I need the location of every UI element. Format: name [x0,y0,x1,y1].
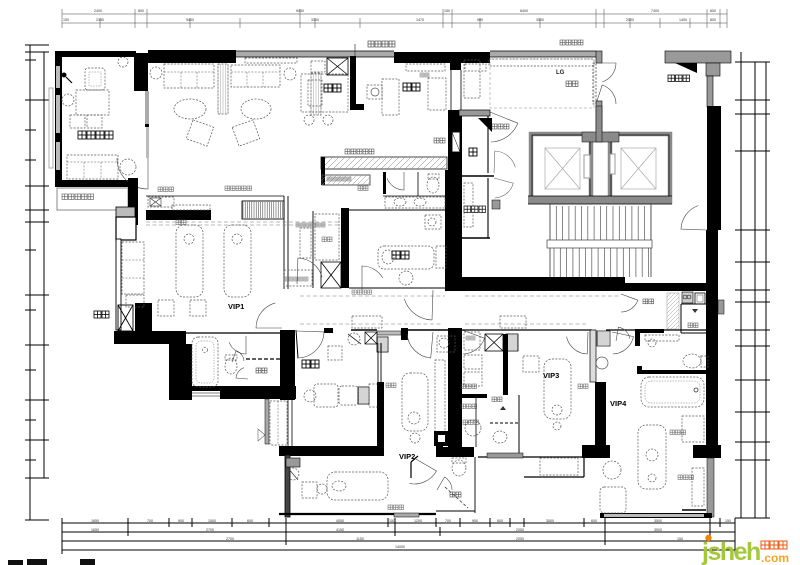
svg-text:3500: 3500 [536,18,544,22]
svg-text:150: 150 [389,519,395,523]
svg-text:1200: 1200 [414,519,422,523]
svg-text:1470: 1470 [416,18,424,22]
svg-text:2000: 2000 [626,18,634,22]
svg-text:2150: 2150 [96,18,104,22]
svg-text:3500: 3500 [546,519,554,523]
svg-text:3300: 3300 [311,18,319,22]
svg-text:1150: 1150 [356,537,364,541]
svg-text:800: 800 [710,9,716,13]
svg-text:600: 600 [591,519,597,523]
svg-text:1400: 1400 [679,18,687,22]
svg-text:3500: 3500 [654,519,662,523]
svg-text:9400: 9400 [296,9,304,13]
svg-text:900: 900 [477,18,483,22]
svg-text:1650: 1650 [91,519,99,523]
svg-text:800: 800 [710,18,716,22]
svg-text:150: 150 [677,537,683,541]
svg-text:2700: 2700 [206,528,214,532]
svg-text:700: 700 [147,519,153,523]
svg-text:800: 800 [138,9,144,13]
svg-text:LG: LG [556,70,565,76]
svg-text:2700: 2700 [226,537,234,541]
svg-text:.com: .com [761,551,789,565]
svg-text:4150: 4150 [336,528,344,532]
svg-text:4050: 4050 [336,519,344,523]
svg-text:2400: 2400 [94,9,102,13]
svg-text:VIP4: VIP4 [610,399,627,408]
svg-text:600: 600 [497,519,503,523]
svg-text:150: 150 [444,9,450,13]
svg-text:5400: 5400 [186,18,194,22]
svg-text:3500: 3500 [654,528,662,532]
svg-text:700: 700 [445,519,451,523]
svg-text:1500: 1500 [208,519,216,523]
svg-text:900: 900 [472,519,478,523]
svg-text:VIP3: VIP3 [543,371,559,380]
svg-text:900: 900 [178,519,184,523]
svg-text:150: 150 [725,519,731,523]
svg-text:14000: 14000 [395,545,405,549]
svg-text:jsheh: jsheh [701,538,760,565]
svg-text:2050: 2050 [516,528,524,532]
svg-text:600: 600 [247,519,253,523]
svg-text:150: 150 [63,18,69,22]
svg-text:2050: 2050 [516,537,524,541]
svg-text:1650: 1650 [91,528,99,532]
svg-text:VIP1: VIP1 [228,302,244,311]
svg-text:6400: 6400 [520,9,528,13]
svg-text:7400: 7400 [651,9,659,13]
